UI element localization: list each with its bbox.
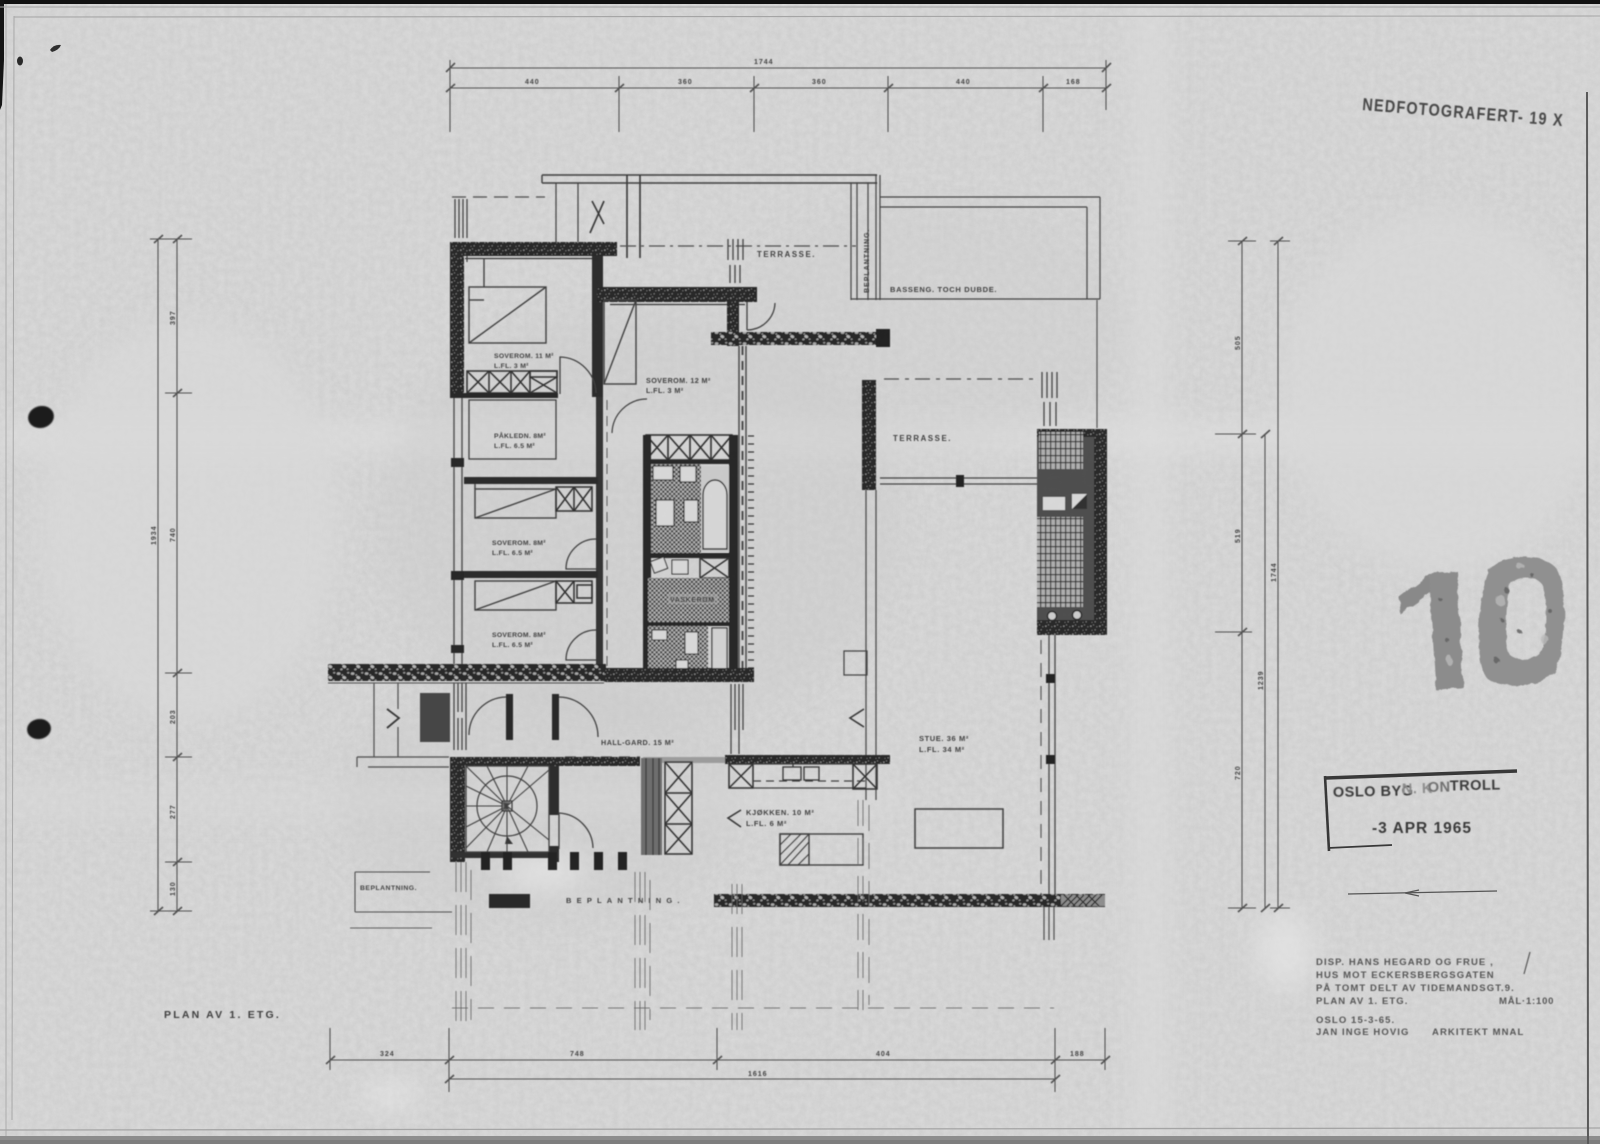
svg-text:1744: 1744 bbox=[1271, 562, 1278, 582]
svg-text:SOVEROM. 11 M²: SOVEROM. 11 M² bbox=[494, 353, 554, 360]
svg-text:505: 505 bbox=[1235, 335, 1242, 350]
svg-text:SOVEROM. 8M²: SOVEROM. 8M² bbox=[492, 632, 546, 639]
svg-text:L.FL. 6.5 M²: L.FL. 6.5 M² bbox=[492, 550, 533, 557]
svg-text:1744: 1744 bbox=[754, 59, 774, 66]
svg-text:168: 168 bbox=[1066, 79, 1081, 86]
svg-text:DISP. HANS HEGARD OG FRUE ,: DISP. HANS HEGARD OG FRUE , bbox=[1316, 957, 1494, 968]
svg-text:PLAN AV 1. ETG.: PLAN AV 1. ETG. bbox=[164, 1009, 281, 1021]
svg-text:PÅ TOMT DELT AV TIDEMANDSGT.9.: PÅ TOMT DELT AV TIDEMANDSGT.9. bbox=[1316, 983, 1515, 994]
svg-text:PLAN AV 1. ETG.: PLAN AV 1. ETG. bbox=[1316, 996, 1409, 1007]
svg-text:SOVEROM. 12 M²: SOVEROM. 12 M² bbox=[646, 376, 711, 385]
svg-text:SOVEROM. 8M²: SOVEROM. 8M² bbox=[492, 540, 546, 547]
svg-text:BEPLANTNING.: BEPLANTNING. bbox=[566, 896, 685, 905]
svg-text:L.FL. 6 M²: L.FL. 6 M² bbox=[746, 819, 787, 828]
svg-text:ON: ON bbox=[1428, 780, 1451, 796]
svg-text:STUE. 36 M²: STUE. 36 M² bbox=[919, 734, 969, 743]
svg-text:740: 740 bbox=[170, 527, 177, 542]
svg-text:JAN INGE HOVIG: JAN INGE HOVIG bbox=[1316, 1027, 1410, 1038]
svg-text:MÅL·1:100: MÅL·1:100 bbox=[1499, 996, 1554, 1007]
svg-text:1239: 1239 bbox=[1258, 670, 1265, 690]
svg-text:519: 519 bbox=[1235, 528, 1242, 543]
svg-text:360: 360 bbox=[812, 79, 827, 86]
svg-text:TERRASSE.: TERRASSE. bbox=[893, 434, 952, 443]
svg-text:L.FL. 3 M²: L.FL. 3 M² bbox=[646, 386, 684, 395]
svg-text:BASSENG. TOCH DUBDE.: BASSENG. TOCH DUBDE. bbox=[890, 285, 997, 294]
svg-text:440: 440 bbox=[525, 79, 540, 86]
svg-text:BEPLANTNING.: BEPLANTNING. bbox=[864, 229, 871, 294]
svg-text:BEPLANTNING.: BEPLANTNING. bbox=[360, 885, 417, 892]
svg-text:L.FL. 6.5 M²: L.FL. 6.5 M² bbox=[494, 443, 535, 450]
svg-text:130: 130 bbox=[170, 881, 177, 896]
svg-text:VASKEROM.: VASKEROM. bbox=[670, 597, 717, 604]
svg-text:404: 404 bbox=[876, 1051, 891, 1058]
svg-text:203: 203 bbox=[170, 709, 177, 724]
svg-text:OSLO 15-3-65.: OSLO 15-3-65. bbox=[1316, 1015, 1395, 1026]
svg-text:-3 APR 1965: -3 APR 1965 bbox=[1372, 820, 1472, 837]
svg-text:TERRASSE.: TERRASSE. bbox=[757, 250, 816, 259]
svg-text:KJØKKEN. 10 M²: KJØKKEN. 10 M² bbox=[746, 808, 814, 817]
svg-text:L.FL. 3 M²: L.FL. 3 M² bbox=[494, 363, 529, 370]
svg-text:ARKITEKT MNAL: ARKITEKT MNAL bbox=[1432, 1027, 1524, 1038]
svg-text:188: 188 bbox=[1070, 1051, 1085, 1058]
svg-text:360: 360 bbox=[678, 79, 693, 86]
svg-text:1616: 1616 bbox=[748, 1071, 768, 1078]
svg-text:L.FL. 6.5 M²: L.FL. 6.5 M² bbox=[492, 642, 533, 649]
svg-text:1934: 1934 bbox=[151, 525, 158, 545]
svg-text:440: 440 bbox=[956, 79, 971, 86]
svg-text:L.FL. 34 M²: L.FL. 34 M² bbox=[919, 745, 965, 754]
svg-text:324: 324 bbox=[380, 1051, 395, 1058]
svg-text:397: 397 bbox=[170, 310, 177, 325]
svg-text:HUS MOT ECKERSBERGSGATEN: HUS MOT ECKERSBERGSGATEN bbox=[1316, 970, 1495, 981]
svg-text:748: 748 bbox=[570, 1051, 585, 1058]
svg-text:TROLL: TROLL bbox=[1450, 777, 1501, 794]
svg-text:720: 720 bbox=[1235, 765, 1242, 780]
svg-text:HALL-GARD. 15 M²: HALL-GARD. 15 M² bbox=[601, 738, 674, 747]
svg-text:PÅKLEDN. 8M²: PÅKLEDN. 8M² bbox=[494, 431, 546, 440]
svg-text:277: 277 bbox=[170, 804, 177, 819]
